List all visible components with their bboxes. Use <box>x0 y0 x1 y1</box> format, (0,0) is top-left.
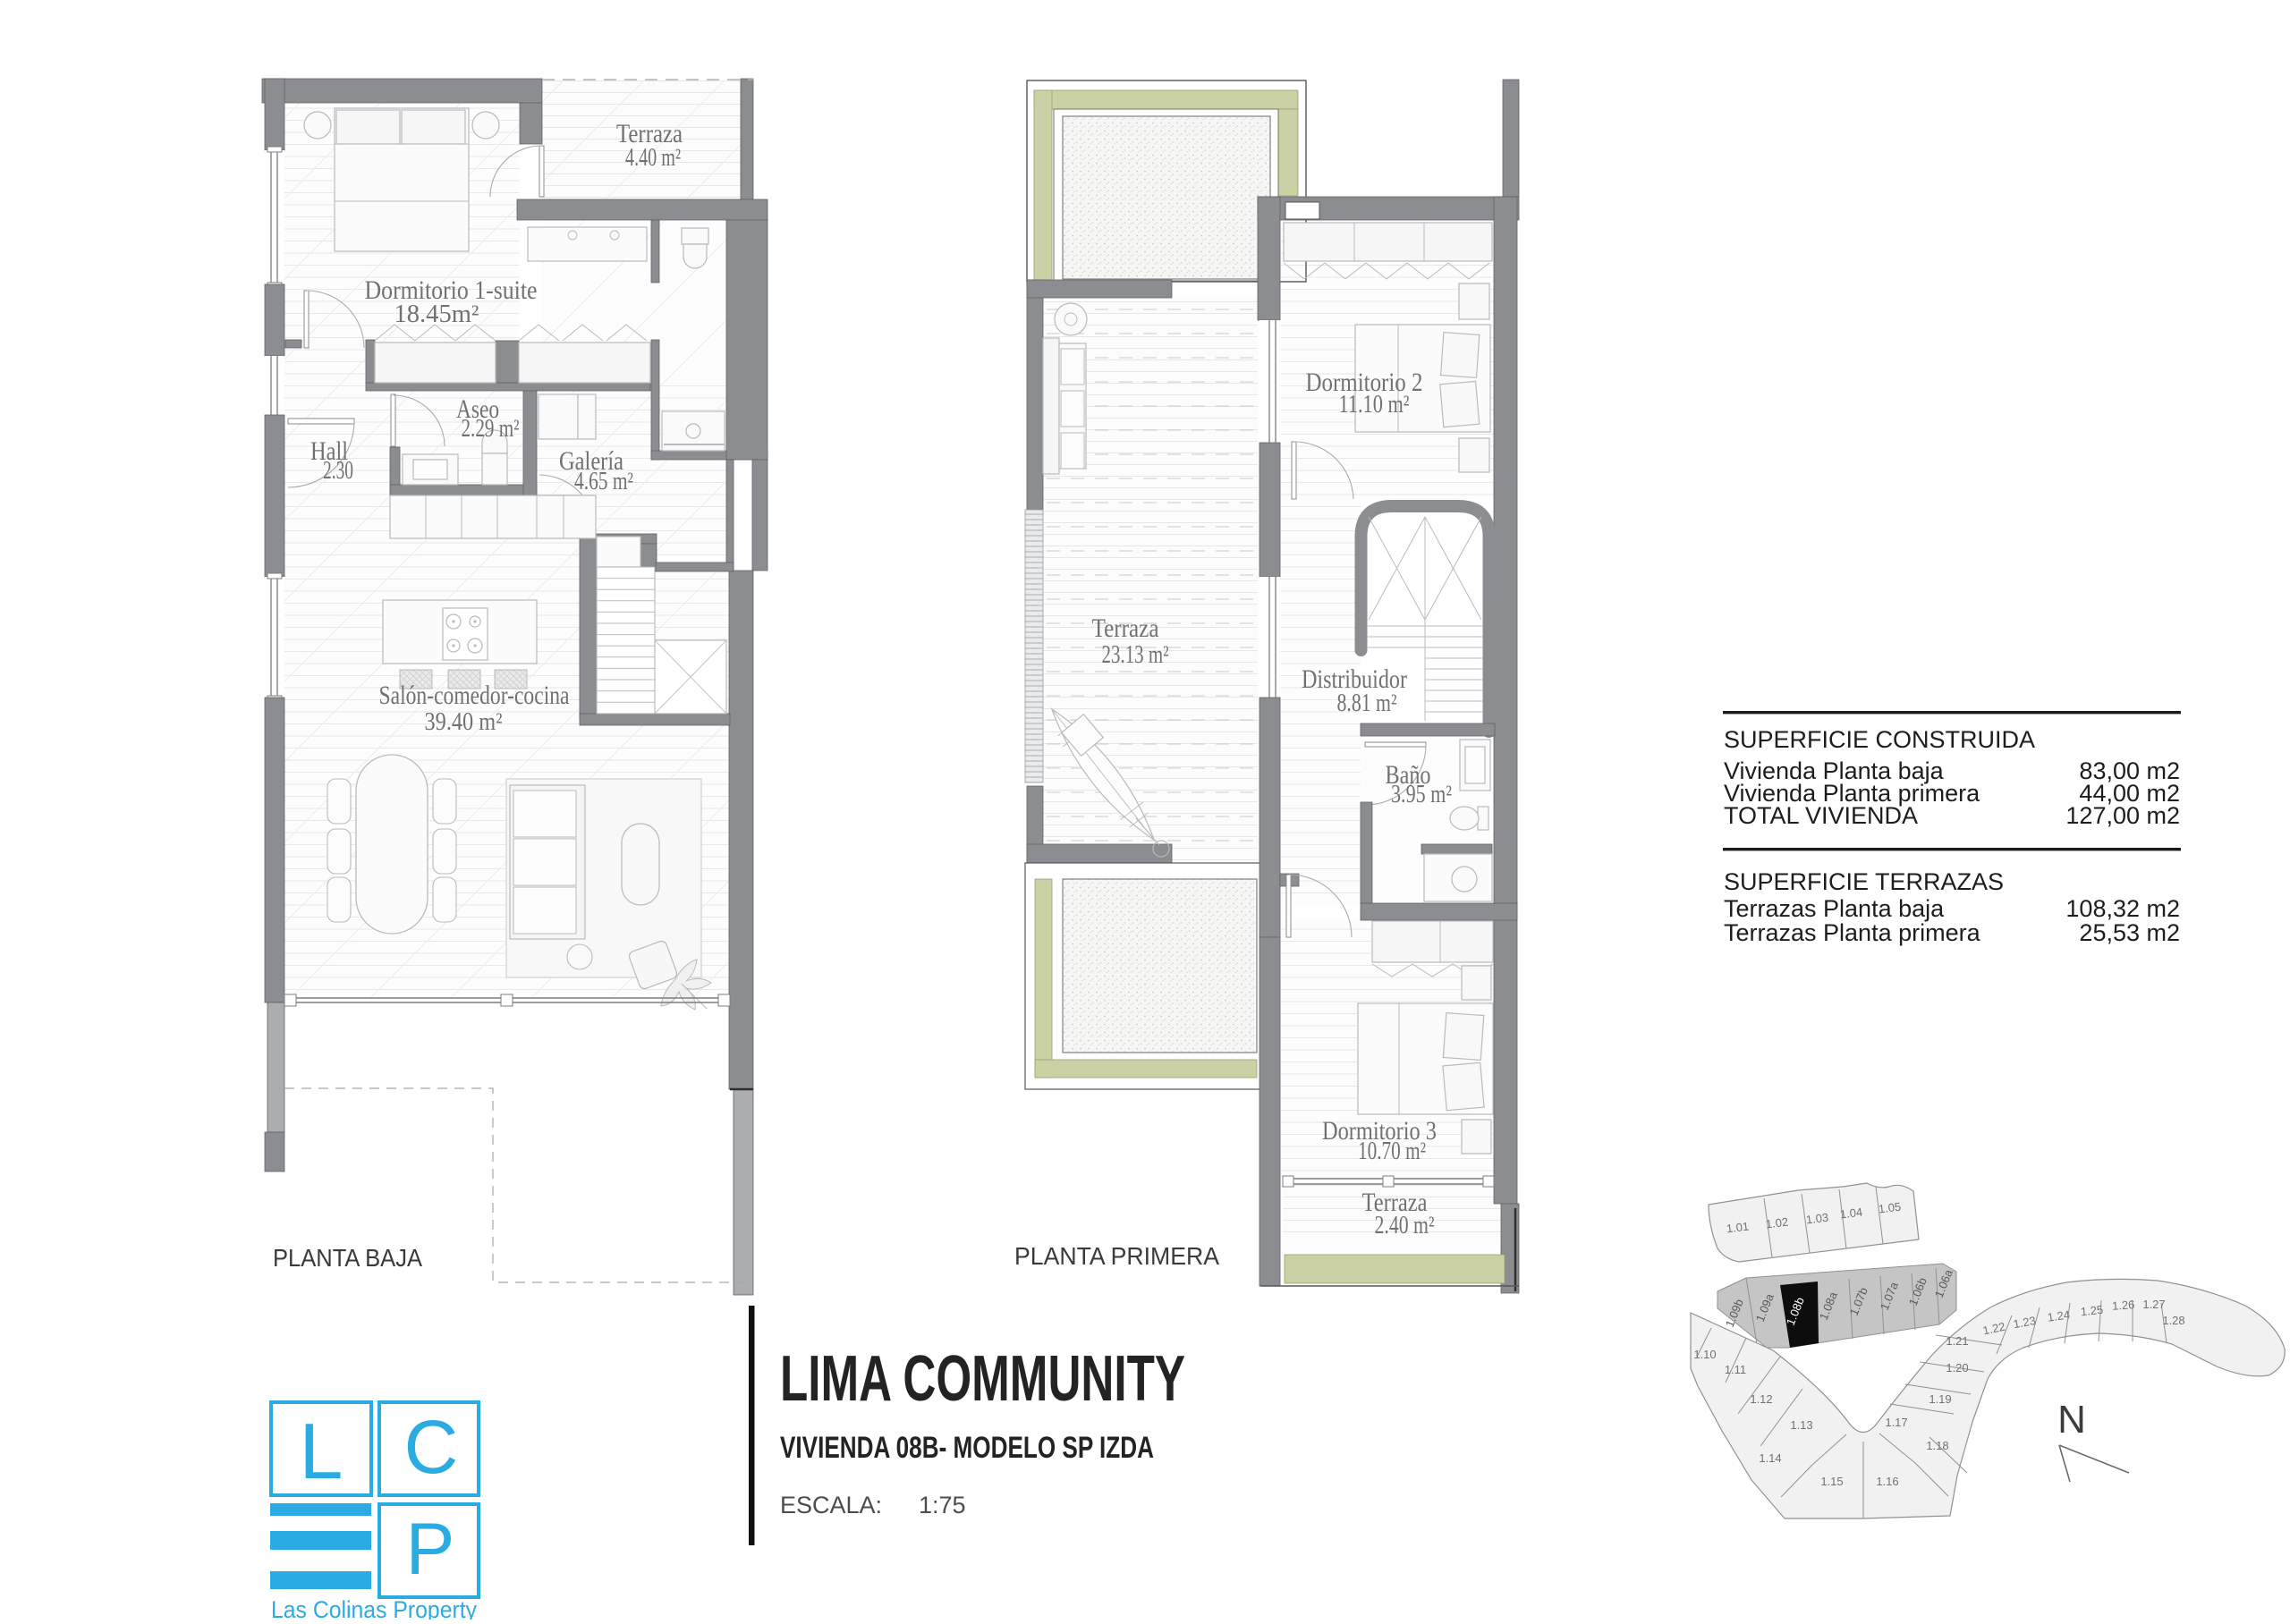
svg-text:1.13: 1.13 <box>1790 1418 1812 1432</box>
svg-text:1.26: 1.26 <box>2112 1298 2135 1313</box>
svg-text:L: L <box>300 1407 343 1495</box>
svg-text:TOTAL VIVIENDA: TOTAL VIVIENDA <box>1724 802 1918 829</box>
svg-text:10.70 m²: 10.70 m² <box>1358 1138 1426 1165</box>
svg-text:1.12: 1.12 <box>1750 1392 1772 1406</box>
svg-text:1.19: 1.19 <box>1929 1392 1951 1406</box>
svg-text:PLANTA BAJA: PLANTA BAJA <box>273 1244 422 1272</box>
svg-text:1.05: 1.05 <box>1878 1200 1902 1216</box>
svg-text:1.03: 1.03 <box>1805 1211 1829 1227</box>
svg-text:4.65 m²: 4.65 m² <box>574 468 633 495</box>
svg-text:1.02: 1.02 <box>1765 1215 1789 1231</box>
svg-text:LIMA COMMUNITY: LIMA COMMUNITY <box>780 1343 1185 1415</box>
svg-text:1.11: 1.11 <box>1725 1363 1746 1376</box>
svg-text:Las Colinas Property: Las Colinas Property <box>271 1596 477 1620</box>
svg-text:3.95 m²: 3.95 m² <box>1391 781 1452 808</box>
svg-text:1.21: 1.21 <box>1946 1334 1968 1348</box>
svg-text:1.27: 1.27 <box>2142 1298 2165 1311</box>
svg-text:1.18: 1.18 <box>1926 1439 1948 1452</box>
svg-text:C: C <box>404 1405 459 1489</box>
svg-text:VIVIENDA 08B- MODELO SP IZDA: VIVIENDA 08B- MODELO SP IZDA <box>780 1431 1154 1465</box>
svg-text:1.14: 1.14 <box>1759 1451 1781 1465</box>
svg-text:1.10: 1.10 <box>1693 1348 1716 1361</box>
svg-text:1.20: 1.20 <box>1946 1361 1968 1374</box>
svg-text:1.25: 1.25 <box>2080 1303 2104 1319</box>
svg-text:18.45m²: 18.45m² <box>394 300 479 328</box>
svg-text:SUPERFICIE TERRAZAS: SUPERFICIE TERRAZAS <box>1724 868 2004 895</box>
svg-text:SUPERFICIE CONSTRUIDA: SUPERFICIE CONSTRUIDA <box>1724 726 2035 753</box>
svg-text:25,53 m2: 25,53 m2 <box>2079 919 2180 946</box>
svg-text:2.29 m²: 2.29 m² <box>462 415 520 443</box>
svg-text:Terrazas Planta baja: Terrazas Planta baja <box>1724 895 1945 922</box>
svg-text:P: P <box>406 1509 455 1590</box>
svg-text:N: N <box>2057 1398 2086 1442</box>
svg-text:108,32 m2: 108,32 m2 <box>2065 895 2180 922</box>
svg-text:Terraza: Terraza <box>1092 613 1159 643</box>
svg-text:PLANTA PRIMERA: PLANTA PRIMERA <box>1014 1242 1219 1270</box>
svg-text:4.40 m²: 4.40 m² <box>625 144 681 172</box>
svg-text:8.81 m²: 8.81 m² <box>1337 689 1397 717</box>
svg-text:1.01: 1.01 <box>1726 1220 1750 1236</box>
svg-text:Salón-comedor-cocina: Salón-comedor-cocina <box>379 681 570 710</box>
svg-text:2.30: 2.30 <box>323 457 353 485</box>
svg-text:1.28: 1.28 <box>2162 1314 2184 1327</box>
svg-text:2.40 m²: 2.40 m² <box>1375 1212 1435 1239</box>
svg-text:1.17: 1.17 <box>1885 1416 1907 1429</box>
svg-text:Terrazas Planta primera: Terrazas Planta primera <box>1724 919 1981 946</box>
svg-text:23.13 m²: 23.13 m² <box>1102 641 1169 669</box>
svg-text:1.15: 1.15 <box>1820 1475 1843 1488</box>
svg-text:ESCALA:: ESCALA: <box>780 1492 882 1518</box>
svg-text:39.40 m²: 39.40 m² <box>425 708 503 736</box>
svg-text:1:75: 1:75 <box>919 1492 966 1518</box>
svg-text:11.10 m²: 11.10 m² <box>1339 391 1410 419</box>
svg-text:1.16: 1.16 <box>1876 1475 1898 1488</box>
svg-text:127,00 m2: 127,00 m2 <box>2065 802 2180 829</box>
svg-text:1.04: 1.04 <box>1839 1205 1863 1222</box>
